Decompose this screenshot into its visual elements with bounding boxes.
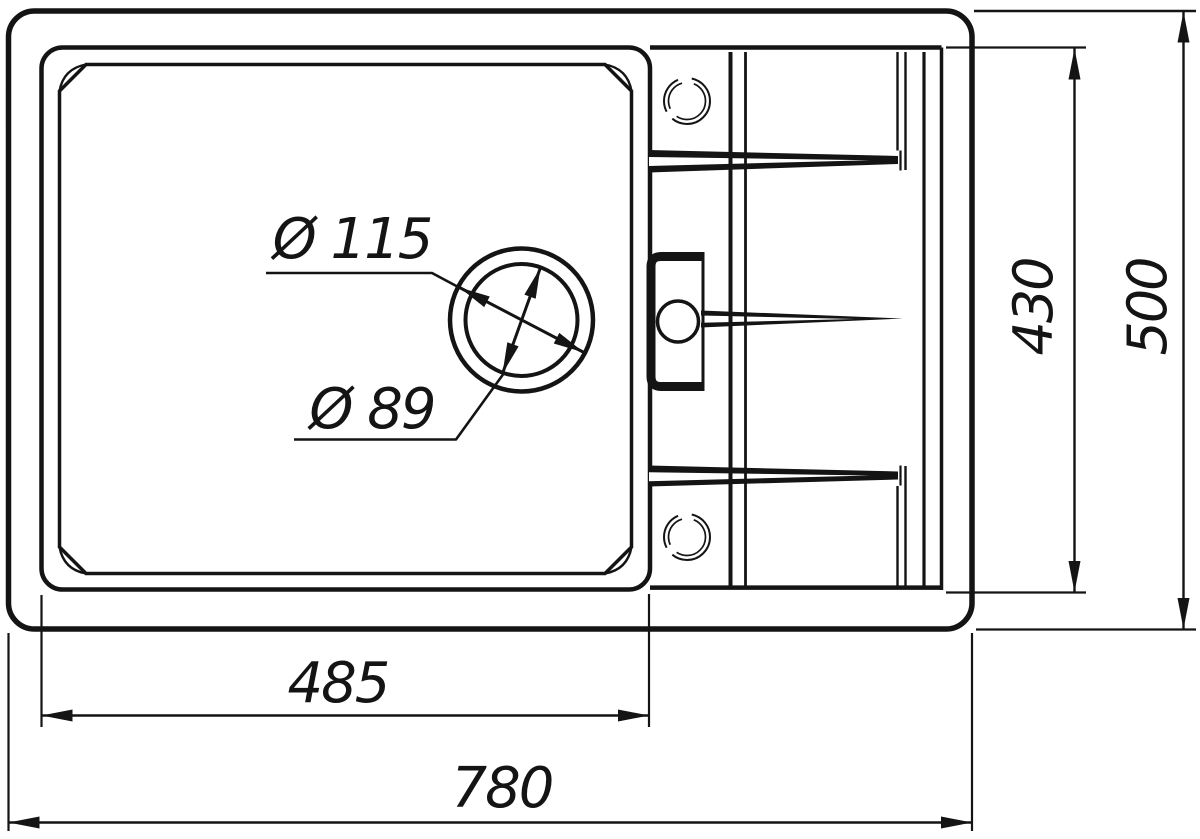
label-interior-depth: 430 xyxy=(1002,258,1065,355)
tap-hole-mark-top xyxy=(664,78,710,124)
label-drain-outer-diameter: Ø 115 xyxy=(271,207,432,272)
dimensions xyxy=(9,11,1197,831)
tap-platform xyxy=(651,252,703,391)
drain-groove-bottom xyxy=(649,466,898,487)
drain-groove-top xyxy=(649,150,898,173)
leader-115 xyxy=(266,273,461,289)
tap-hole xyxy=(658,301,699,342)
dimension-labels: Ø 115 Ø 89 485 780 430 500 xyxy=(271,207,1179,821)
sink-technical-drawing: Ø 115 Ø 89 485 780 430 500 xyxy=(0,0,1200,839)
bowl-rim xyxy=(42,48,651,590)
drain-hole xyxy=(450,249,593,392)
tap-hole-mark-bottom xyxy=(664,514,710,560)
label-overall-width: 780 xyxy=(452,756,553,821)
label-overall-depth: 500 xyxy=(1116,258,1179,355)
label-drain-inner-diameter: Ø 89 xyxy=(307,377,434,442)
bowl-inner-edge xyxy=(60,65,632,574)
sink-bowl xyxy=(42,48,651,590)
label-bowl-width: 485 xyxy=(288,651,389,716)
diameter-arrow-89 xyxy=(503,268,541,374)
drawing-canvas: Ø 115 Ø 89 485 780 430 500 xyxy=(0,0,1200,839)
drainboard xyxy=(649,48,942,591)
